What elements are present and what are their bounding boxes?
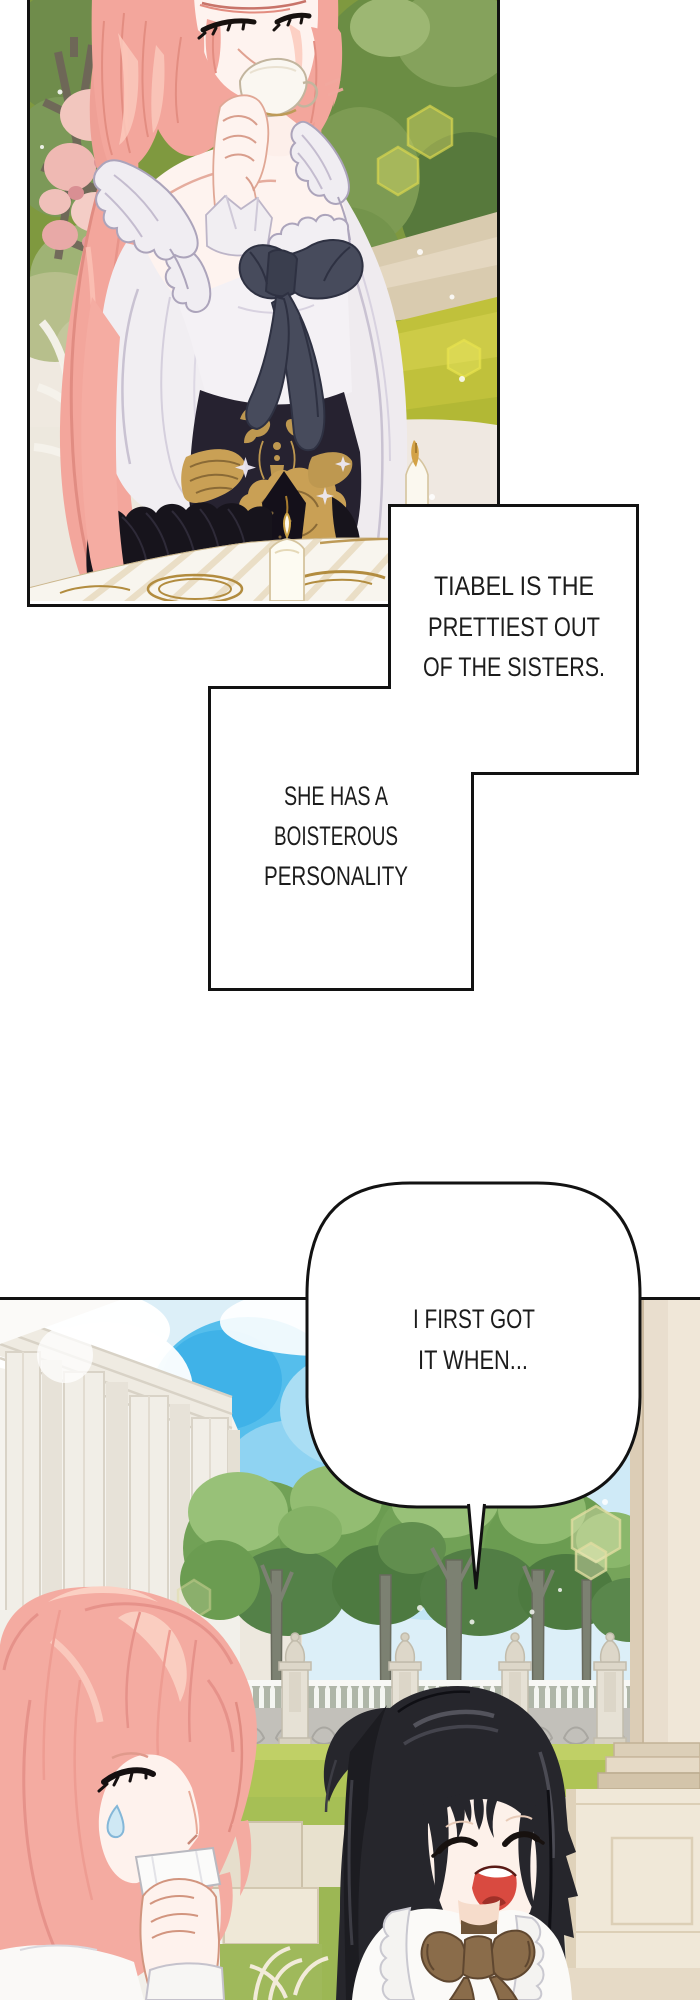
svg-text:TIABEL IS THE: TIABEL IS THE [434,571,594,601]
svg-text:IT WHEN...: IT WHEN... [418,1345,528,1375]
svg-text:SHE HAS A: SHE HAS A [284,781,388,811]
svg-text:I FIRST GOT: I FIRST GOT [413,1304,535,1334]
svg-text:BOISTEROUS: BOISTEROUS [274,821,398,851]
svg-text:PRETTIEST OUT: PRETTIEST OUT [428,612,600,642]
svg-text:OF THE SISTERS.: OF THE SISTERS. [423,652,605,682]
svg-text:PERSONALITY: PERSONALITY [264,861,408,891]
